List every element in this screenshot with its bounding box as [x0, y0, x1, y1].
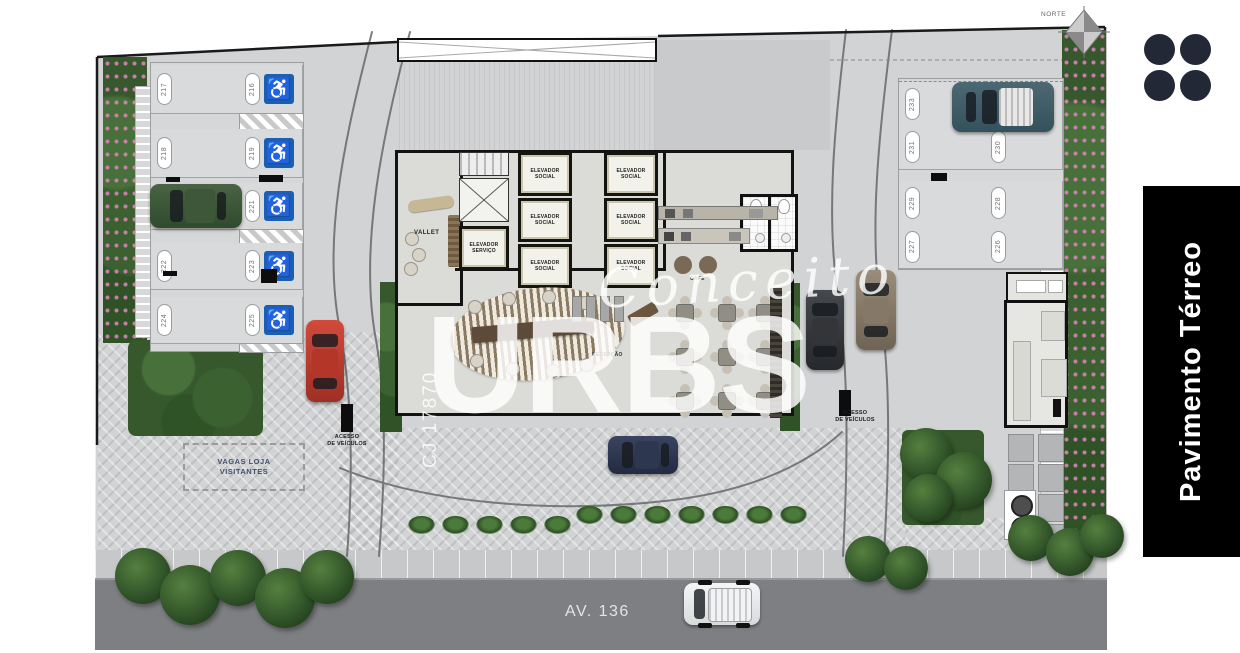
accessible-parking-icon: ♿	[264, 74, 294, 104]
speed-bump	[341, 404, 353, 432]
parking-stall: 226	[985, 225, 1063, 269]
tower-footprint	[399, 62, 655, 150]
chair	[502, 292, 516, 306]
paver-pad	[1038, 464, 1064, 492]
car-teal	[952, 82, 1054, 132]
pavement-mark	[259, 175, 283, 182]
four-dot-logo-icon	[1144, 34, 1214, 104]
sink	[755, 233, 765, 243]
appliance	[729, 232, 741, 241]
vallet-label: VALLET	[414, 230, 439, 236]
stall-number: 224	[157, 304, 172, 336]
counter	[1016, 280, 1046, 293]
service-elevator: ELEVADORSERVIÇO	[459, 226, 509, 270]
hedge-right	[1062, 30, 1106, 554]
bench	[572, 296, 582, 322]
parking-stall: 217	[151, 65, 240, 114]
parking-stall-accessible: 221 ♿	[239, 183, 303, 230]
stall-number: 226	[991, 231, 1006, 263]
stall-number: 227	[905, 231, 920, 263]
compass-icon	[1052, 4, 1116, 62]
stall-number: 229	[905, 187, 920, 219]
upper-terrace	[655, 40, 830, 150]
service-room-main	[1004, 300, 1068, 428]
canopy-truss	[399, 40, 655, 60]
bench	[586, 296, 596, 322]
van-white	[684, 583, 760, 625]
wall	[768, 197, 771, 249]
paver-pad	[1008, 434, 1034, 462]
social-elevator: ELEVADORSOCIAL	[604, 244, 658, 288]
accessible-parking-icon: ♿	[264, 191, 294, 221]
bench	[614, 296, 624, 322]
appliance	[664, 232, 674, 241]
parking-stall-accessible: 225 ♿	[239, 297, 303, 344]
stairs	[459, 152, 509, 176]
table-set	[710, 340, 744, 374]
parking-stall: 222	[151, 243, 240, 290]
hatch-zone	[239, 343, 304, 353]
counter	[1048, 280, 1063, 293]
chair	[412, 248, 426, 262]
cabinet	[1041, 311, 1065, 341]
social-elevator: ELEVADORSOCIAL	[518, 198, 572, 242]
parking-stall: 218	[151, 129, 240, 178]
stall-number: 222	[157, 250, 172, 282]
chair	[506, 362, 520, 376]
stall-number: 228	[991, 187, 1006, 219]
chair	[546, 364, 560, 378]
parking-stall: 224	[151, 297, 240, 344]
planter-row	[408, 516, 571, 534]
social-elevator: ELEVADORSOCIAL	[604, 198, 658, 242]
bench	[600, 296, 610, 322]
paver-pad	[1038, 434, 1064, 462]
sink	[781, 233, 791, 243]
table-set	[668, 384, 702, 418]
stall-number: 219	[245, 137, 260, 169]
parking-stall-accessible: 219 ♿	[239, 129, 303, 178]
tree	[300, 550, 354, 604]
burner	[1011, 495, 1033, 517]
parking-stall: 228	[985, 181, 1063, 226]
accessible-parking-icon: ♿	[264, 138, 294, 168]
parking-stall: 227	[899, 225, 986, 269]
cafe-label: CAFÉ	[690, 276, 705, 282]
tree	[845, 536, 891, 582]
stall-number: 221	[245, 190, 260, 222]
tree	[904, 474, 952, 522]
banquette	[770, 288, 782, 418]
car-bronze	[856, 270, 896, 350]
chair	[404, 262, 418, 276]
stall-number: 233	[905, 88, 920, 120]
appliance	[683, 209, 693, 218]
car-black	[806, 290, 844, 370]
floor-title-panel: Pavimento Térreo	[1143, 186, 1240, 557]
pavement-mark	[261, 269, 277, 283]
floor-plan-canvas: AV. 136 217 216 ♿	[0, 0, 1240, 653]
chair	[542, 290, 556, 304]
stall-number: 218	[157, 137, 172, 169]
stall-number: 225	[245, 304, 260, 336]
counter	[1013, 341, 1031, 421]
social-elevator: ELEVADORSOCIAL	[604, 152, 658, 196]
fixture	[1053, 399, 1061, 417]
hedge-left-lower	[128, 340, 263, 436]
visitor-parking-zone: VAGAS LOJAVISITANTES	[183, 443, 305, 491]
service-room-upper	[1006, 272, 1068, 302]
pouf	[699, 256, 717, 274]
table-set	[710, 296, 744, 330]
social-elevator: ELEVADORSOCIAL	[518, 152, 572, 196]
cabinet	[1041, 359, 1067, 397]
kitchen-counter	[658, 206, 778, 220]
reception-label: RECEPÇÃO	[592, 352, 623, 358]
vehicle-access-label: ACESSODE VEÍCULOS	[318, 434, 376, 448]
car-navy	[608, 436, 678, 474]
social-elevator: ELEVADORSOCIAL	[518, 244, 572, 288]
pouf	[674, 256, 692, 274]
chair	[580, 358, 594, 372]
parking-stall: 229	[899, 181, 986, 226]
paver-pad	[1008, 464, 1034, 492]
parking-stall-accessible: 216 ♿	[239, 65, 303, 114]
car-red	[306, 320, 344, 402]
stall-number: 216	[245, 73, 260, 105]
stall-number: 231	[905, 131, 920, 163]
stall-number: 223	[245, 250, 260, 282]
toilet	[778, 199, 790, 214]
walkway-left	[135, 86, 151, 338]
wall	[395, 303, 463, 306]
appliance	[665, 209, 675, 218]
table-set	[710, 384, 744, 418]
planter-row	[576, 506, 807, 524]
building-ground-floor	[395, 150, 794, 416]
cafe-counter	[658, 228, 750, 244]
chair	[470, 354, 484, 368]
tree	[884, 546, 928, 590]
pavement-mark	[163, 271, 177, 276]
table-set	[668, 296, 702, 330]
stall-number: 230	[991, 131, 1006, 163]
stall-number: 217	[157, 73, 172, 105]
chair	[468, 300, 482, 314]
tree	[1080, 514, 1124, 558]
stair-core	[459, 178, 509, 222]
floor-title: Pavimento Térreo	[1175, 241, 1208, 502]
pavement-mark	[166, 177, 180, 182]
car-green	[150, 184, 242, 228]
table-set	[668, 340, 702, 374]
appliance	[681, 232, 691, 241]
entrance-canopy	[397, 38, 657, 62]
vehicle-access-label: ACESSODE VEÍCULOS	[826, 410, 884, 424]
accessible-parking-icon: ♿	[264, 305, 294, 335]
appliance	[749, 209, 763, 218]
